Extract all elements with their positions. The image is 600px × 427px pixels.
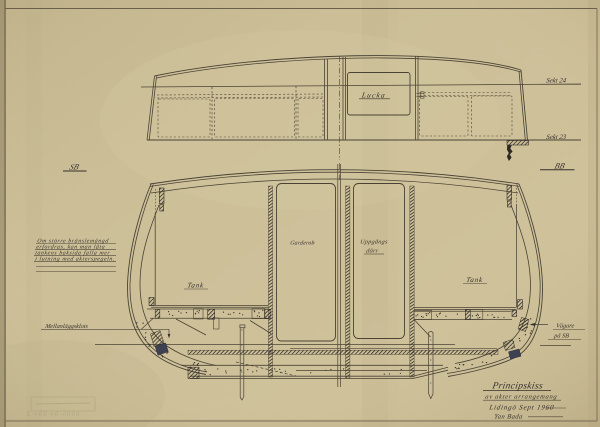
svg-text:av akter arrangemang: av akter arrangemang: [485, 394, 558, 401]
svg-text:Mellanläggsklots: Mellanläggsklots: [44, 323, 89, 330]
svg-text:tankens baksida falla mer: tankens baksida falla mer: [35, 249, 111, 256]
svg-text:Sekt 23: Sekt 23: [546, 134, 568, 141]
svg-text:Lucka: Lucka: [360, 91, 387, 100]
svg-text:dörr: dörr: [366, 249, 380, 255]
svg-text:erfordras, kan man låta: erfordras, kan man låta: [36, 243, 106, 250]
svg-text:Garderob: Garderob: [290, 241, 315, 247]
svg-text:Uppgångs: Uppgångs: [360, 239, 389, 246]
svg-text:Tank: Tank: [187, 282, 205, 290]
svg-text:på SB: på SB: [553, 333, 570, 340]
svg-text:Principskiss: Principskiss: [490, 381, 543, 392]
svg-text:Tank: Tank: [466, 276, 484, 284]
svg-text:Lidingö Sept 1960: Lidingö Sept 1960: [488, 404, 555, 412]
svg-text:Vägare: Vägare: [556, 323, 575, 330]
svg-text:Yan Bada: Yan Bada: [494, 414, 524, 421]
svg-text:Sekt 24: Sekt 24: [546, 78, 568, 85]
svg-text:L·vöö·vö-öööö: L·vöö·vö-öööö: [26, 410, 80, 418]
